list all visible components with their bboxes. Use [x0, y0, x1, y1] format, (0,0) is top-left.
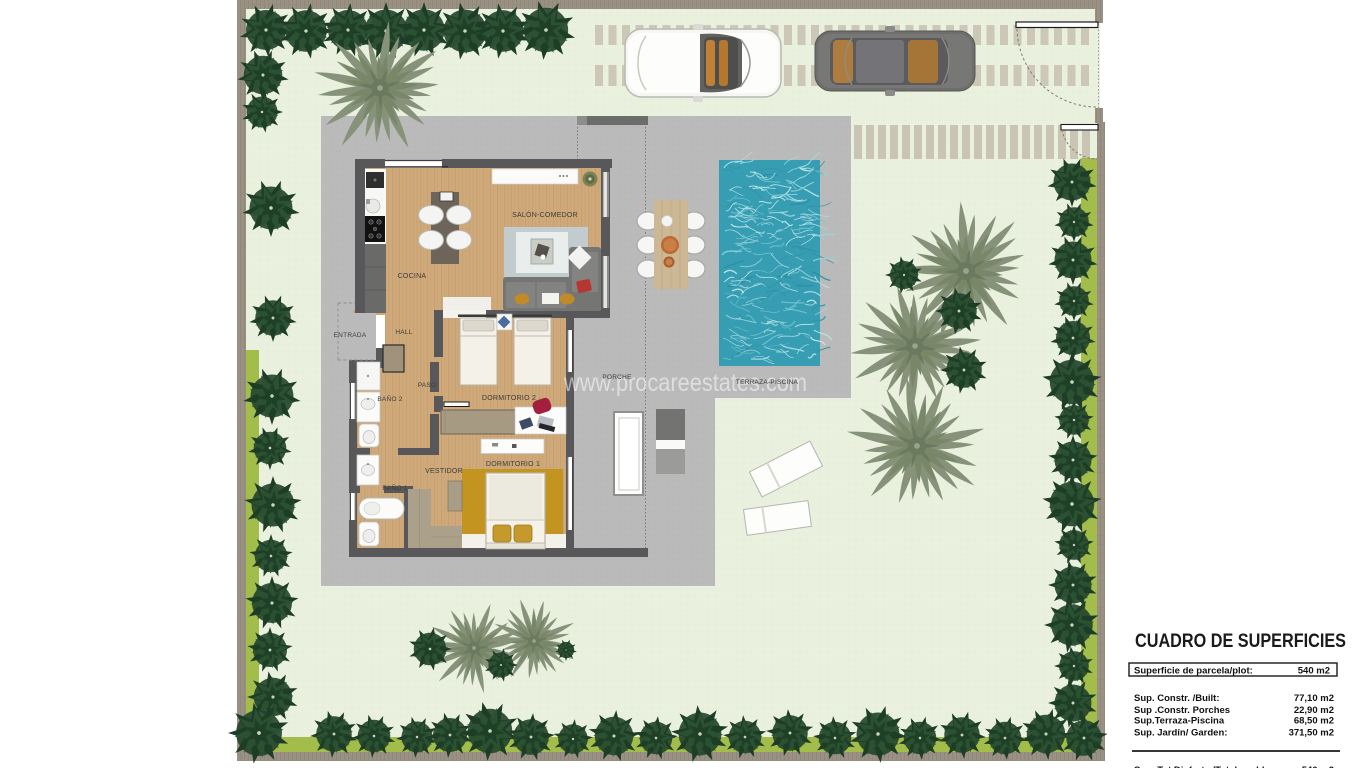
svg-text:HALL: HALL [395, 329, 412, 336]
svg-text:Sup .Constr. Porches: Sup .Constr. Porches [1134, 705, 1230, 716]
svg-text:77,10 m2: 77,10 m2 [1294, 693, 1334, 704]
svg-text:Superficie de parcela/plot:: Superficie de parcela/plot: [1134, 666, 1253, 677]
svg-text:Sup. Constr. /Built:: Sup. Constr. /Built: [1134, 693, 1220, 704]
svg-text:PASO: PASO [418, 382, 437, 389]
svg-text:PORCHE: PORCHE [602, 374, 632, 381]
svg-text:SALÓN-COMEDOR: SALÓN-COMEDOR [512, 210, 578, 219]
svg-text:371,50 m2: 371,50 m2 [1289, 728, 1334, 739]
svg-text:TERRAZA-PISCINA: TERRAZA-PISCINA [736, 379, 799, 386]
svg-text:540 m2: 540 m2 [1298, 666, 1330, 677]
svg-text:Sup. Jardín/ Garden:: Sup. Jardín/ Garden: [1134, 728, 1227, 739]
svg-text:ENTRADA: ENTRADA [334, 332, 367, 339]
svg-text:DORMITORIO 1: DORMITORIO 1 [486, 461, 540, 468]
svg-text:68,50 m2: 68,50 m2 [1294, 716, 1334, 727]
svg-text:COCINA: COCINA [398, 273, 427, 280]
svg-text:VESTIDOR: VESTIDOR [425, 468, 463, 475]
svg-text:CUADRO DE SUPERFICIES: CUADRO DE SUPERFICIES [1135, 631, 1346, 652]
svg-text:BAÑO 1: BAÑO 1 [382, 483, 407, 492]
svg-text:22,90 m2: 22,90 m2 [1294, 705, 1334, 716]
svg-text:DORMITORIO 2: DORMITORIO 2 [482, 395, 536, 402]
svg-text:BAÑO 2: BAÑO 2 [377, 394, 402, 403]
svg-text:Sup.Terraza-Piscina: Sup.Terraza-Piscina [1134, 716, 1225, 727]
